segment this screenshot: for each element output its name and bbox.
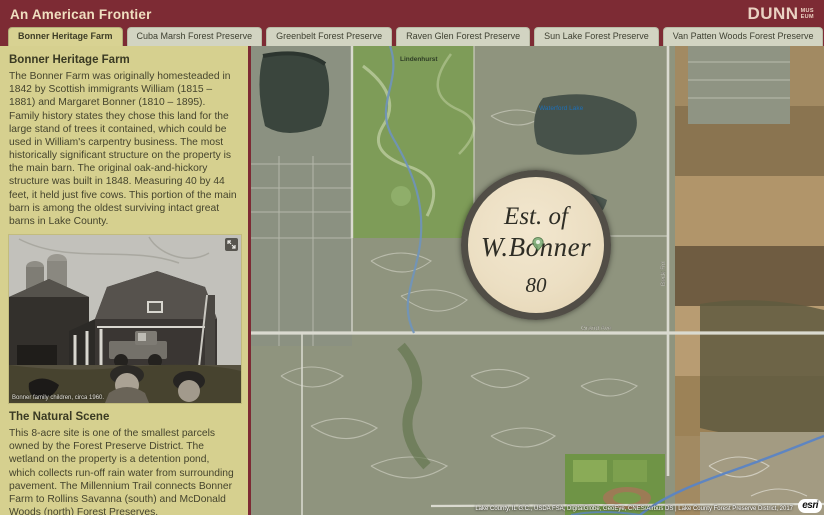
spyglass-text-line3: 80 — [468, 273, 604, 298]
logo-subtext: MUS EUM — [801, 8, 814, 20]
history-paragraph: The Bonner Farm was originally homestead… — [9, 70, 238, 228]
tab-van-patten-woods[interactable]: Van Patten Woods Forest Preserve — [663, 27, 824, 46]
natural-scene-paragraph: This 8-acre site is one of the smallest … — [9, 427, 238, 515]
dunn-museum-logo: DUNN MUS EUM — [747, 4, 814, 24]
info-sidebar: Bonner Heritage Farm The Bonner Farm was… — [0, 46, 251, 515]
tab-sun-lake[interactable]: Sun Lake Forest Preserve — [534, 27, 659, 46]
page-title: An American Frontier — [10, 7, 152, 22]
header-bar: An American Frontier DUNN MUS EUM Bonner… — [0, 0, 824, 46]
tab-raven-glen[interactable]: Raven Glen Forest Preserve — [396, 27, 530, 46]
natural-scene-heading: The Natural Scene — [9, 411, 238, 423]
esri-logo[interactable]: esri — [798, 499, 822, 513]
logo-text: DUNN — [747, 4, 798, 24]
barn-photo-illustration — [9, 235, 241, 403]
historic-photo[interactable]: Bonner family children, circa 1960. — [9, 235, 241, 403]
road-label-horizontal: Grand Ave — [581, 325, 612, 332]
sidebar-heading: Bonner Heritage Farm — [9, 54, 238, 66]
tab-cuba-marsh[interactable]: Cuba Marsh Forest Preserve — [127, 27, 263, 46]
entrance-pin-icon[interactable] — [532, 237, 544, 251]
tab-greenbelt[interactable]: Greenbelt Forest Preserve — [266, 27, 392, 46]
expand-icon — [227, 240, 236, 249]
expand-photo-button[interactable] — [225, 238, 238, 251]
lake-label-1: Waterford Lake — [539, 105, 584, 112]
town-label: Lindenhurst — [400, 56, 438, 63]
satellite-map[interactable]: Lindenhurst Waterford Lake Potomac Lake … — [251, 46, 824, 515]
tab-bonner-heritage-farm[interactable]: Bonner Heritage Farm — [8, 27, 123, 46]
road-label-vertical: Beck Rd — [660, 261, 667, 286]
photo-caption: Bonner family children, circa 1960. — [12, 395, 104, 401]
preserve-tabs: Bonner Heritage Farm Cuba Marsh Forest P… — [8, 27, 823, 46]
app-window: An American Frontier DUNN MUS EUM Bonner… — [0, 0, 824, 515]
spyglass-text-line1: Est. of — [468, 203, 604, 231]
spyglass-tool[interactable]: Est. of W.Bonner 80 — [461, 170, 611, 320]
